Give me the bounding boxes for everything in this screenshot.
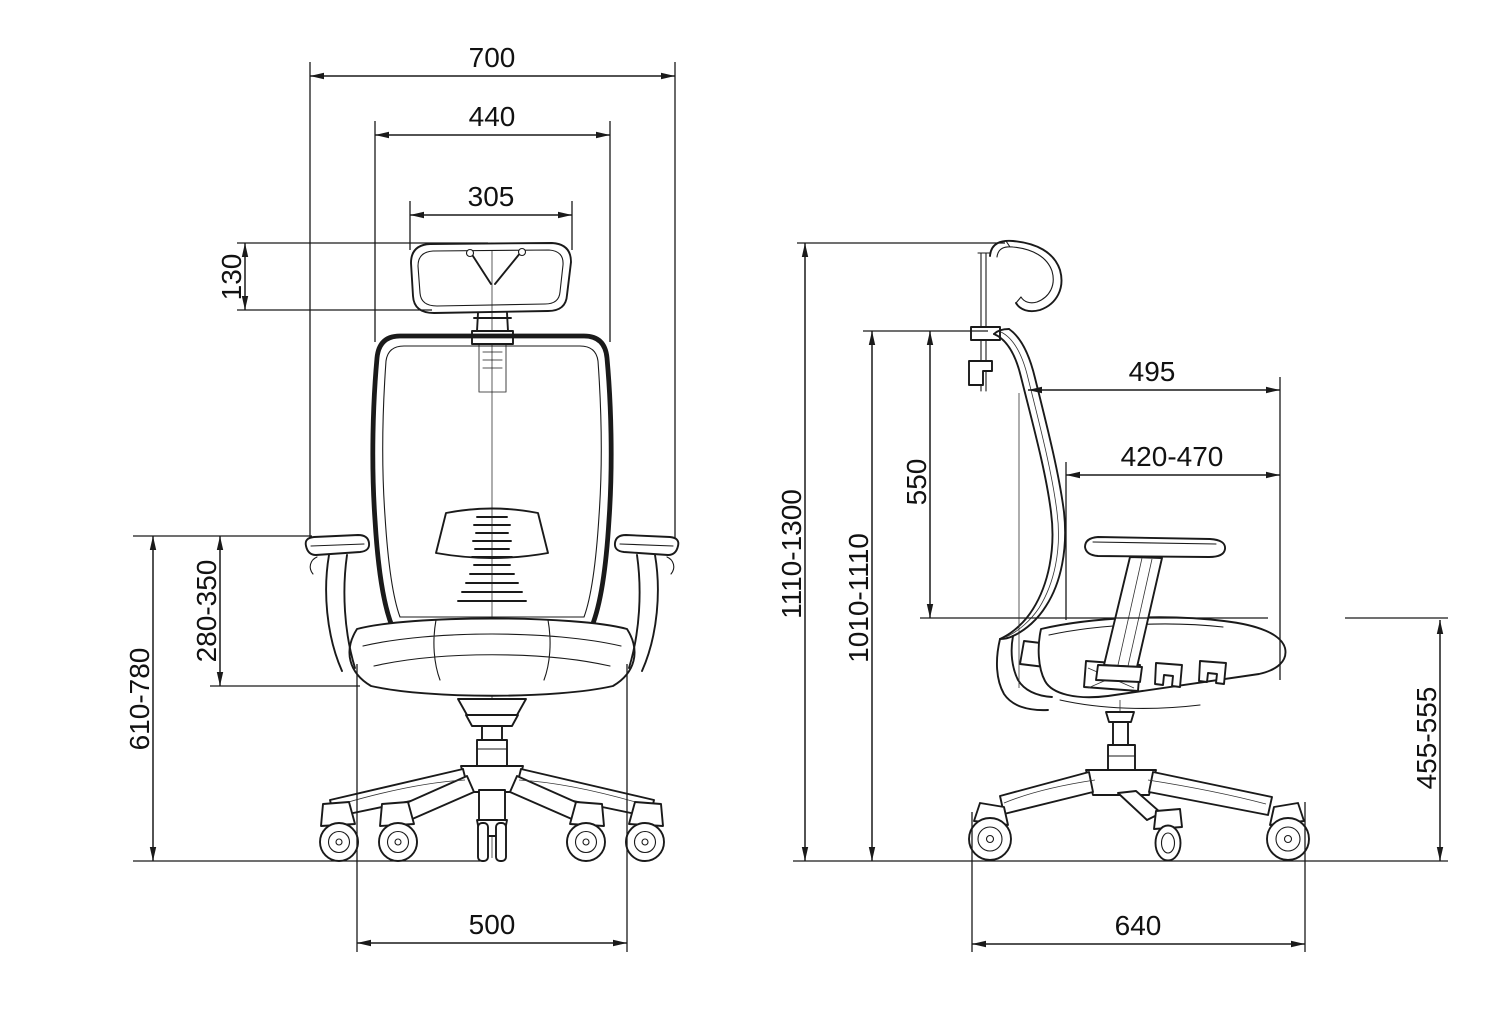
dim-side-backrest-top-height: 1010-1110	[843, 331, 988, 861]
dim-label-seat-depth-adjustable: 420-470	[1121, 441, 1224, 472]
dim-label-armrest-above-seat: 280-350	[191, 560, 222, 663]
side-backrest-mid-line	[1001, 332, 1058, 637]
side-base-hub	[1086, 770, 1156, 795]
front-seat-bracket	[458, 699, 526, 726]
side-seat-under-lip	[1060, 700, 1200, 708]
side-caster-front	[1267, 803, 1309, 860]
front-cylinder	[477, 726, 507, 766]
dim-label-overall-width: 700	[469, 42, 516, 73]
side-armrest-pad	[1085, 537, 1225, 557]
dim-label-seat-total-depth: 495	[1129, 356, 1176, 387]
dim-label-base-footprint: 640	[1115, 910, 1162, 941]
dim-label-seat-height: 455-555	[1411, 687, 1442, 790]
dim-side-seat-height: 455-555	[1411, 620, 1442, 861]
dim-front-armrest-above-seat: 280-350	[133, 536, 360, 686]
dim-label-armrest-floor-height: 610-780	[124, 648, 155, 751]
dim-front-headrest-height: 130	[216, 243, 488, 310]
dim-label-overall-height: 1110-1300	[776, 489, 807, 619]
front-stem-behind-backrest	[479, 344, 506, 392]
side-headrest-hook-outer	[990, 241, 1061, 311]
side-backrest-caps	[994, 329, 1013, 639]
chair-dimension-drawing: 700 440 305 130 280-350	[0, 0, 1500, 1021]
side-dimensions: 1110-1300 1010-1110 550 495 420-470 45	[776, 243, 1448, 952]
side-armrest-foot	[1096, 665, 1142, 682]
front-armrest-left-lever	[310, 557, 317, 574]
front-headrest-inner-line	[418, 250, 563, 306]
side-base-leg-front	[1149, 772, 1272, 815]
front-headrest-frame	[411, 243, 571, 313]
side-backrest-front-edge	[1009, 329, 1065, 636]
side-cylinder-tubes	[1108, 722, 1135, 770]
side-base-leg-rear	[1000, 772, 1093, 814]
dim-side-base-footprint: 640	[972, 802, 1305, 952]
front-stem-lines	[474, 313, 511, 331]
front-headrest	[411, 243, 571, 313]
dim-label-headrest-width: 305	[468, 181, 515, 212]
technical-drawing-canvas: 700 440 305 130 280-350	[0, 0, 1500, 1021]
front-view	[133, 243, 678, 861]
front-base-leg-center	[479, 790, 505, 824]
side-caster-middle	[1154, 809, 1182, 861]
front-headrest-hanger	[471, 252, 521, 284]
side-backrest-back-edge	[994, 334, 1052, 639]
side-base	[969, 770, 1309, 861]
side-view	[793, 241, 1448, 861]
side-cylinder-cone	[1106, 712, 1134, 722]
front-gas-lift	[458, 699, 526, 766]
front-headrest-bolt-right	[519, 249, 526, 256]
front-armrest-left-support	[326, 555, 355, 671]
dim-label-headrest-height: 130	[216, 254, 247, 301]
front-headrest-stem	[472, 313, 513, 392]
dim-label-backrest-top-height: 1010-1110	[843, 533, 874, 663]
dim-front-armrest-floor-height: 610-780	[124, 536, 155, 861]
side-caster-rear	[969, 803, 1011, 860]
dim-label-backrest-width: 440	[469, 101, 516, 132]
dim-front-headrest-width: 305	[410, 181, 572, 250]
dim-label-backrest-height: 550	[901, 459, 932, 506]
side-headrest-mount	[969, 241, 1061, 391]
front-headrest-bolt-left	[467, 250, 474, 257]
front-seat-cushion	[349, 619, 634, 696]
front-seat	[349, 619, 634, 696]
dim-label-seat-width: 500	[469, 909, 516, 940]
dim-side-seat-depth-adjustable: 420-470	[1066, 441, 1280, 620]
front-armrest-right-lever	[667, 557, 674, 574]
front-armrest-right-support	[629, 555, 658, 671]
side-stem-clamp-lower	[969, 361, 992, 385]
